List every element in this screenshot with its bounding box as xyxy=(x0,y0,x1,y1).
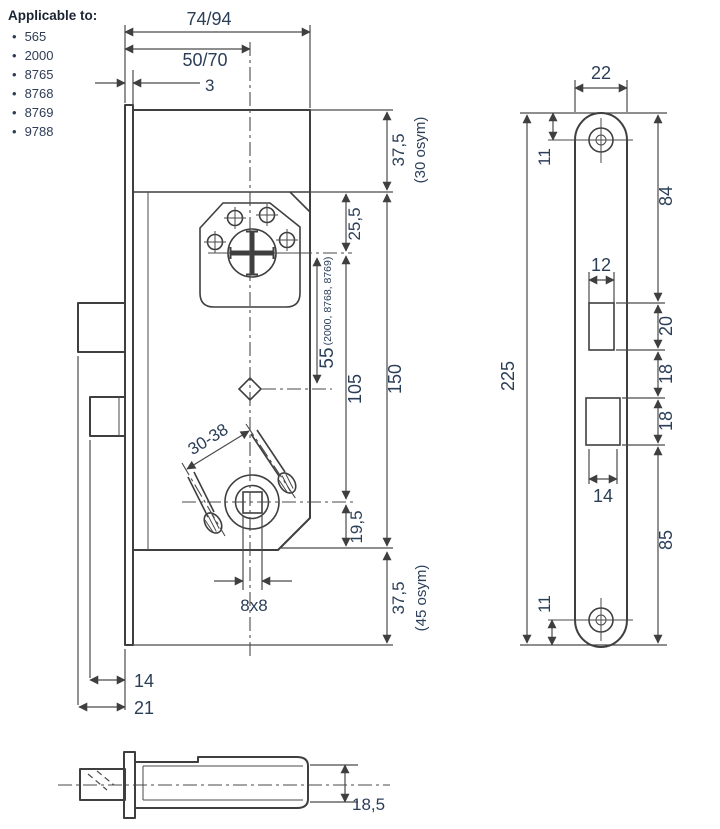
deadbolt-opening xyxy=(586,398,620,445)
extension-lines-square xyxy=(243,516,262,590)
dim-label-gap-lower: 18 xyxy=(656,411,676,431)
dim-label-cyl-aux: 55 xyxy=(317,347,338,368)
extension-lines-throw xyxy=(78,356,125,710)
cylinder-cross-icon xyxy=(231,232,274,275)
front-view: 30-38 74/94 50/70 3 55 (2000, 87 xyxy=(78,9,430,718)
extension-lines-latch-width xyxy=(589,272,614,303)
dim-label-length: 225 xyxy=(498,361,518,391)
side-view: 18,5 xyxy=(58,752,390,818)
dim-label-bottom-margin: 37,5 xyxy=(389,581,408,614)
dim-label-plate-thickness: 3 xyxy=(205,76,214,95)
latch-bevel-lines xyxy=(88,771,114,790)
dim-label-fp-width: 22 xyxy=(591,63,611,83)
hole-top-crosshair xyxy=(548,118,633,163)
deadbolt xyxy=(90,397,125,436)
dim-label-body-height: 150 xyxy=(385,364,405,394)
dim-label-top-to-latch: 84 xyxy=(656,186,676,206)
faceplate-ref-lines xyxy=(520,113,667,645)
dim-label-spindle-bottom: 19,5 xyxy=(347,510,366,543)
faceplate-outline xyxy=(575,113,627,647)
dim-label-hole-top: 11 xyxy=(535,148,554,166)
dim-label-top-margin: 37,5 xyxy=(389,133,408,166)
case-corner-chamfer xyxy=(290,192,310,212)
dim-label-spindle-square: 8x8 xyxy=(240,596,267,615)
extension-lines-thickness xyxy=(310,765,358,802)
dim-label-latch-throw: 21 xyxy=(134,698,154,718)
latch-opening xyxy=(589,303,614,350)
dim-label-latch-width: 12 xyxy=(591,255,611,275)
dim-label-bolt-width: 14 xyxy=(593,486,613,506)
latch-bolt xyxy=(78,303,125,352)
dim-label-bottom-margin-note: (45 osym) xyxy=(413,565,430,632)
dim-label-cyl-spindle: 105 xyxy=(345,374,365,404)
faceplate-edge xyxy=(125,105,133,645)
side-case-inner-lines xyxy=(143,766,303,800)
dim-label-gap-upper: 18 xyxy=(656,364,676,384)
extension-lines-fp-width xyxy=(575,80,627,112)
faceplate-view: 22 11 11 12 14 84 20 18 18 xyxy=(498,63,676,647)
dim-label-cyl-aux-note: (2000, 8768, 8769) xyxy=(322,257,334,346)
dim-label-thickness: 18,5 xyxy=(352,795,385,814)
dim-label-screw-range: 30-38 xyxy=(185,420,232,459)
dim-label-top-margin-note: (30 osym) xyxy=(412,117,429,184)
technical-drawing: 30-38 74/94 50/70 3 55 (2000, 87 xyxy=(0,0,720,829)
dim-label-width: 74/94 xyxy=(186,9,231,29)
dim-label-latch-height: 20 xyxy=(656,316,676,336)
lock-dimension-drawing-page: Applicable to: •565 •2000 •8765 •8768 •8… xyxy=(0,0,720,829)
dim-label-cyl-offset: 25,5 xyxy=(345,207,364,240)
dim-label-deadbolt-throw: 14 xyxy=(134,671,154,691)
hole-bottom-crosshair xyxy=(548,598,633,641)
lock-case-outline xyxy=(133,110,310,550)
dim-label-backset: 50/70 xyxy=(182,50,227,70)
dim-label-bottom-section: 85 xyxy=(656,530,676,550)
dim-label-hole-bottom: 11 xyxy=(535,595,554,613)
